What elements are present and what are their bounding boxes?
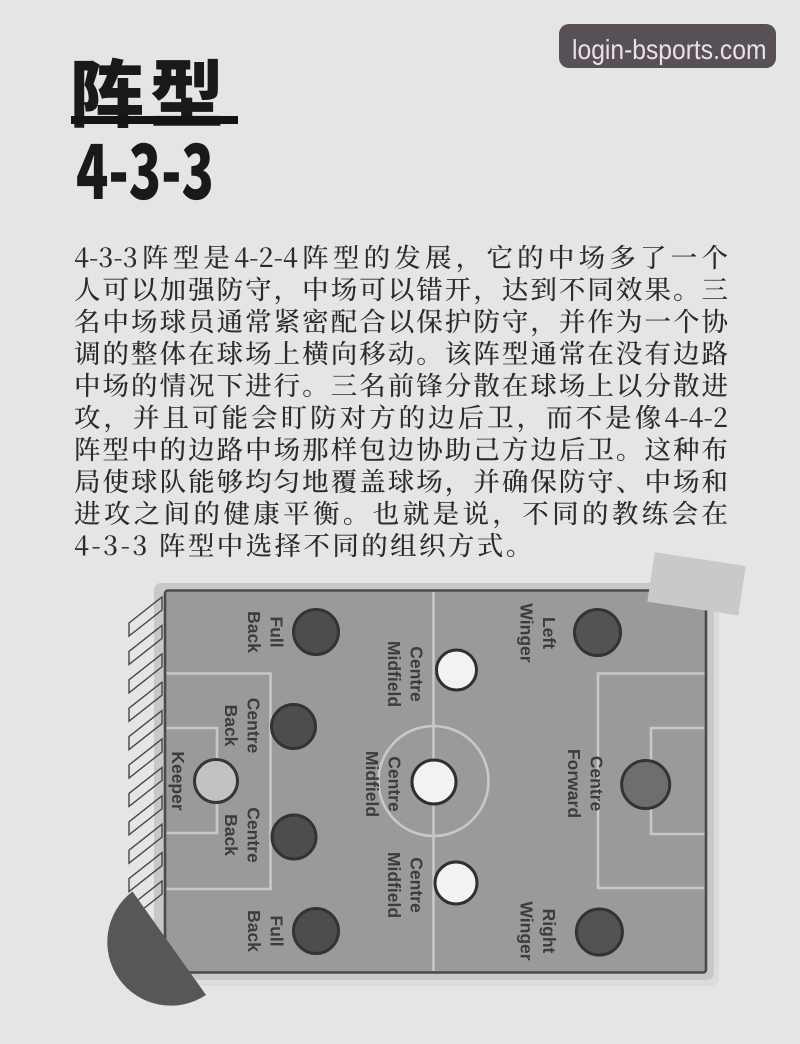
svg-text:Keeper: Keeper (168, 751, 188, 811)
